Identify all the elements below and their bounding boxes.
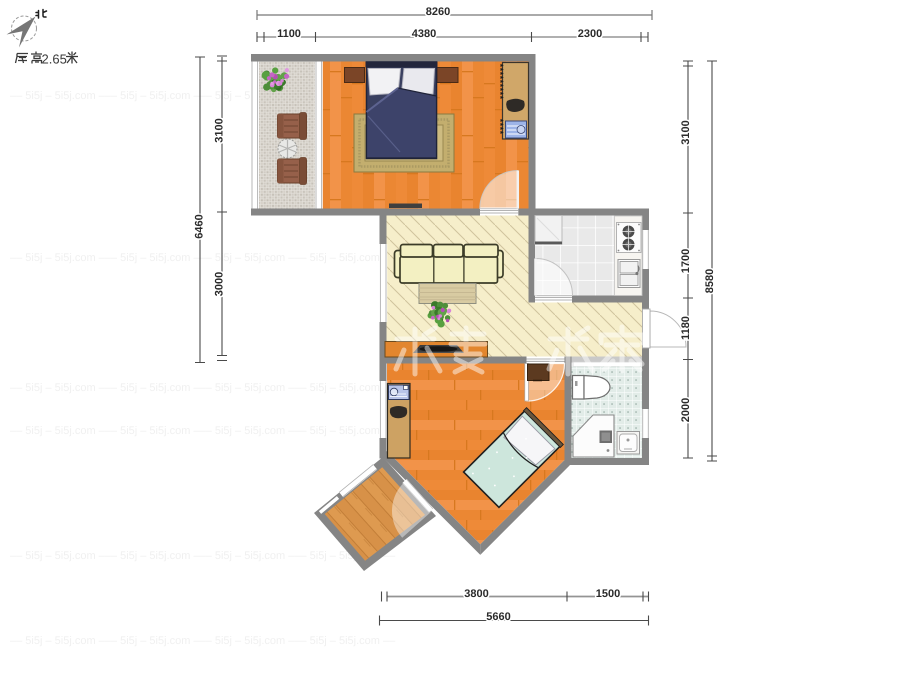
svg-text:2.65: 2.65	[42, 52, 67, 67]
svg-text:‒‒ 5i5j ‒ 5i5j.com ‒‒‒ 5i5j ‒: ‒‒ 5i5j ‒ 5i5j.com ‒‒‒ 5i5j ‒ 5i5j.com ‒…	[10, 550, 396, 562]
svg-text:2300: 2300	[578, 28, 602, 40]
svg-text:3000: 3000	[214, 272, 226, 296]
svg-text:1100: 1100	[277, 28, 301, 40]
svg-text:2000: 2000	[680, 398, 692, 422]
svg-text:3800: 3800	[464, 588, 488, 600]
svg-text:‒‒ 5i5j ‒ 5i5j.com ‒‒‒ 5i5j ‒: ‒‒ 5i5j ‒ 5i5j.com ‒‒‒ 5i5j ‒ 5i5j.com ‒…	[10, 425, 396, 437]
svg-text:1700: 1700	[680, 249, 692, 273]
svg-text:6460: 6460	[194, 214, 206, 238]
svg-text:‒‒ 5i5j ‒ 5i5j.com ‒‒‒ 5i5j ‒: ‒‒ 5i5j ‒ 5i5j.com ‒‒‒ 5i5j ‒ 5i5j.com ‒…	[10, 635, 396, 647]
svg-text:1180: 1180	[680, 316, 692, 340]
svg-text:5660: 5660	[486, 611, 510, 623]
svg-text:‒‒ 5i5j ‒ 5i5j.com ‒‒‒ 5i5j ‒: ‒‒ 5i5j ‒ 5i5j.com ‒‒‒ 5i5j ‒ 5i5j.com ‒…	[10, 252, 396, 264]
svg-text:1500: 1500	[596, 588, 620, 600]
svg-text:4380: 4380	[412, 28, 436, 40]
svg-text:‒‒ 5i5j ‒ 5i5j.com ‒‒‒ 5i5j ‒: ‒‒ 5i5j ‒ 5i5j.com ‒‒‒ 5i5j ‒ 5i5j.com ‒…	[10, 382, 396, 394]
svg-text:3100: 3100	[214, 118, 226, 142]
svg-text:3100: 3100	[680, 120, 692, 144]
svg-text:8580: 8580	[704, 269, 716, 293]
svg-text:8260: 8260	[426, 6, 450, 18]
